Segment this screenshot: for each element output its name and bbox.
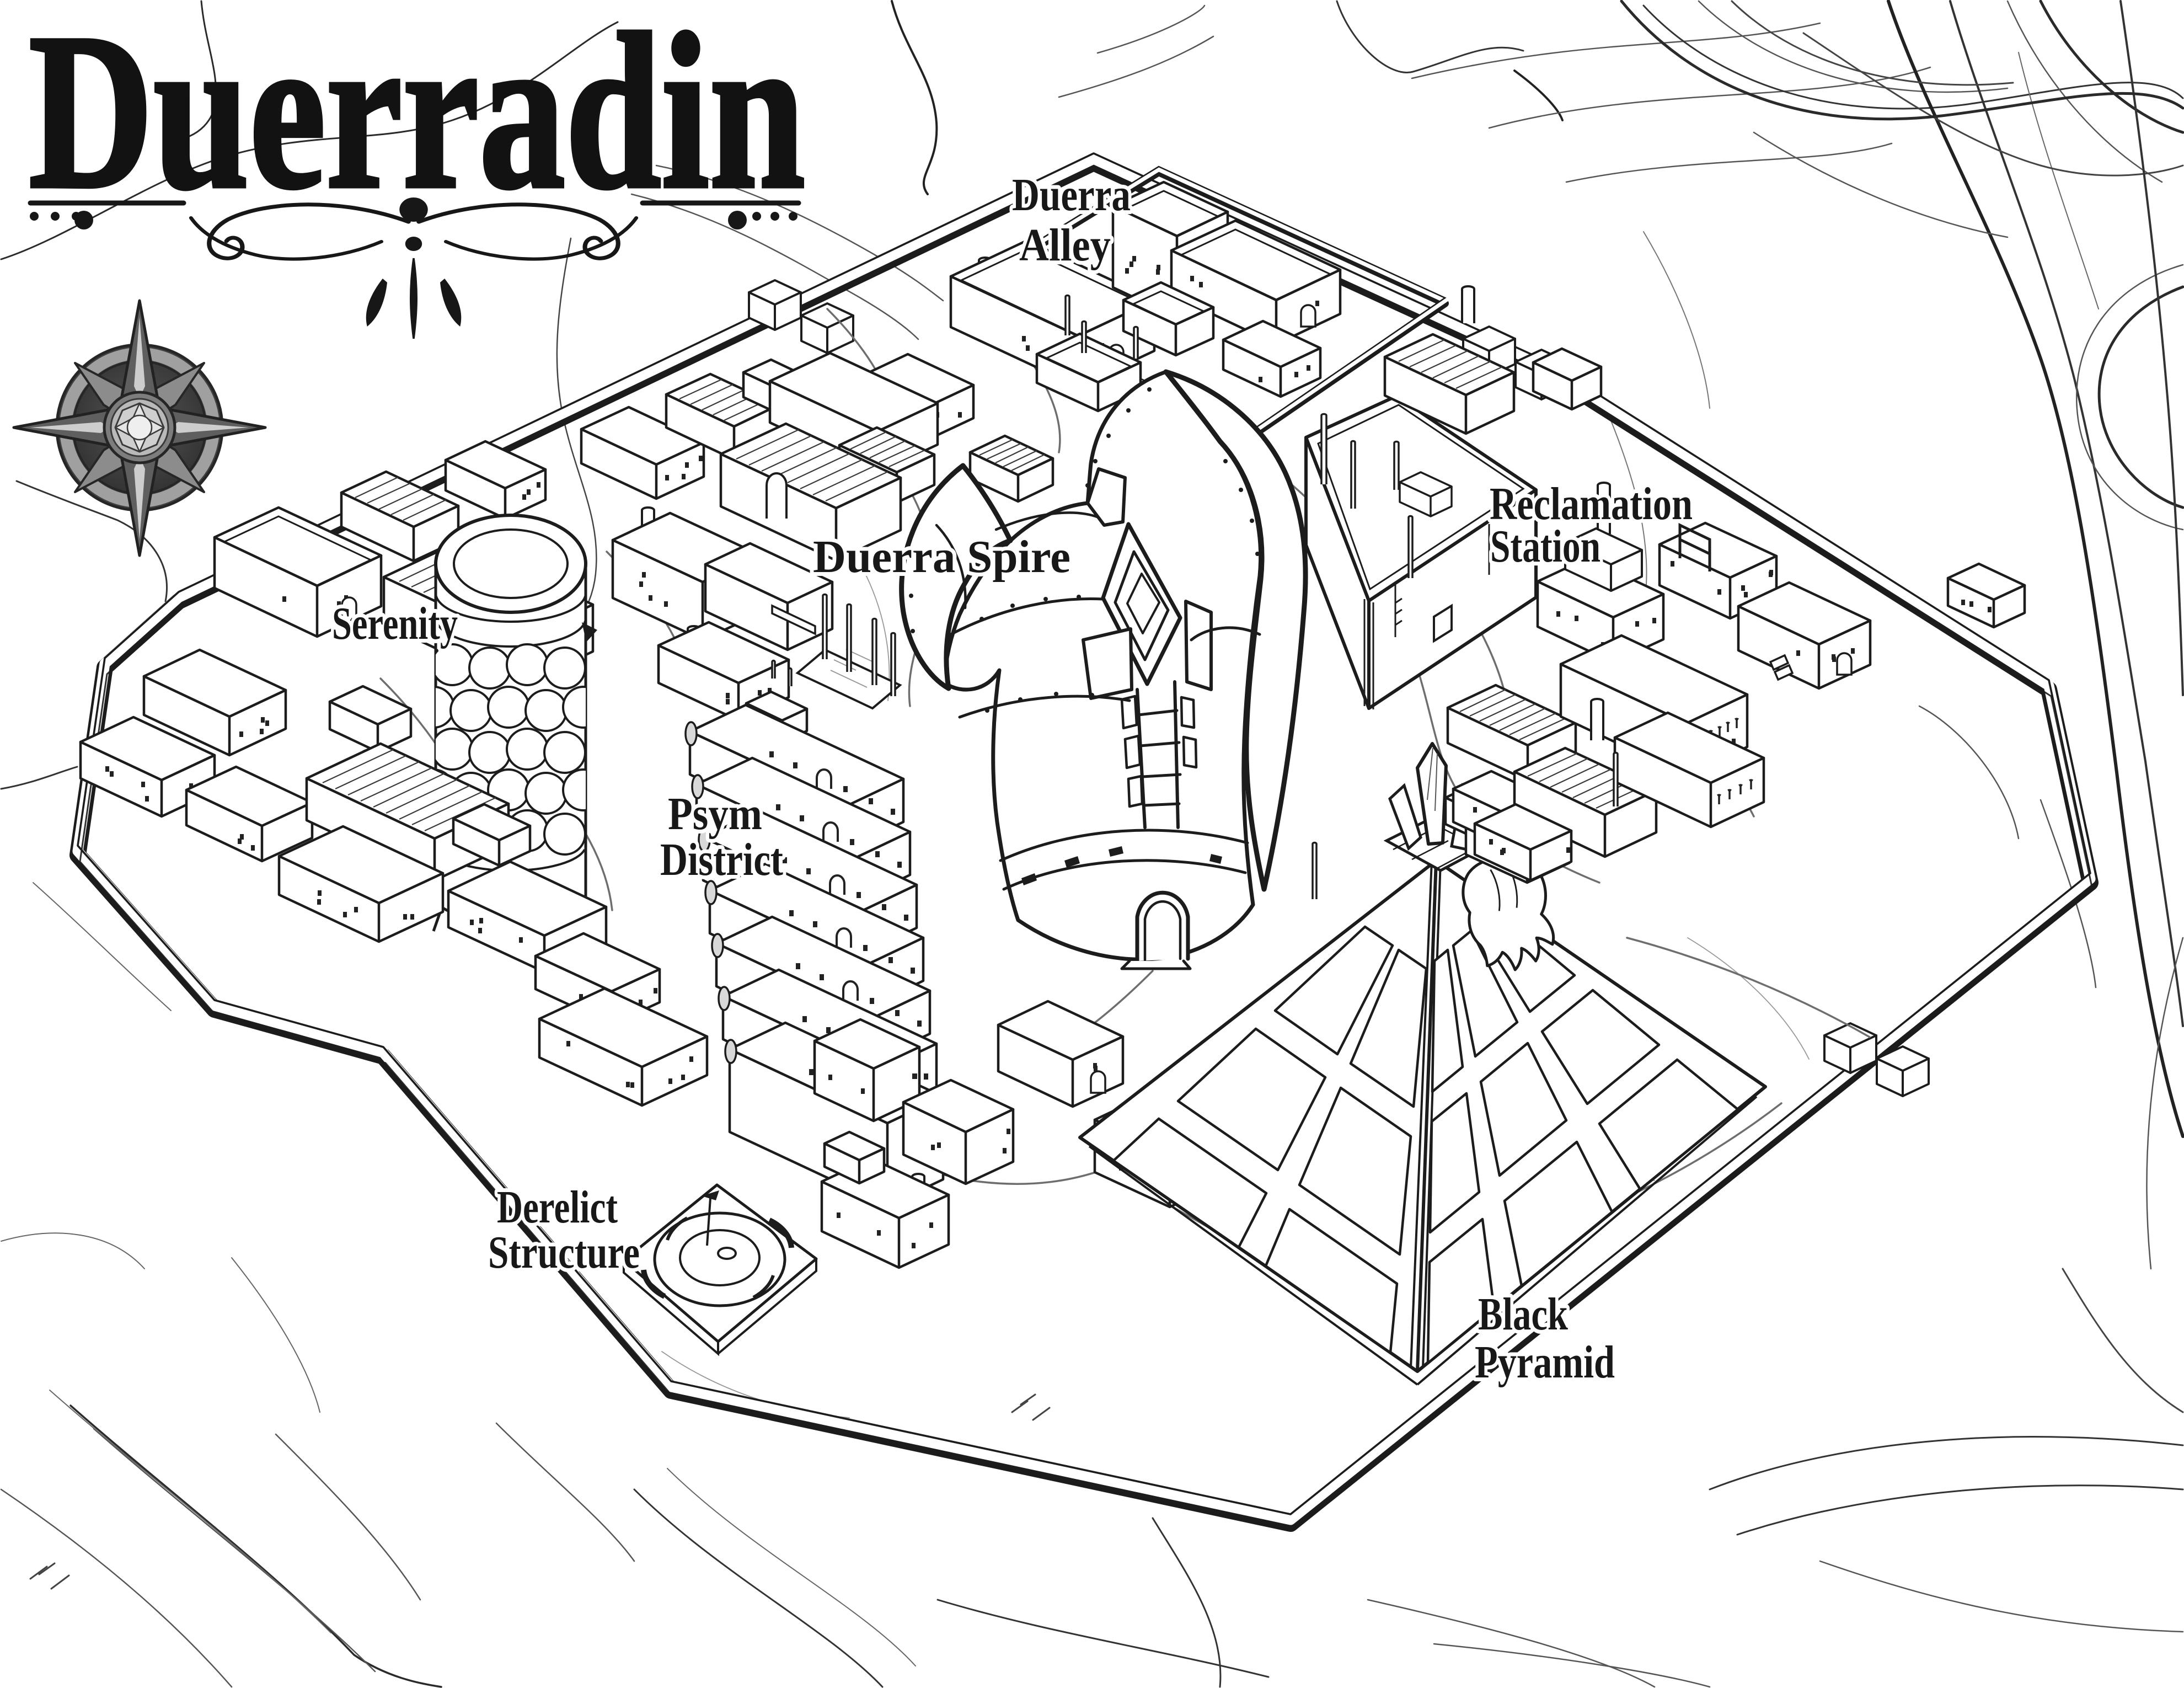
svg-text:Serenity: Serenity xyxy=(332,598,458,649)
svg-text:District: District xyxy=(660,834,783,885)
svg-text:Duerra: Duerra xyxy=(1012,169,1131,221)
svg-text:Pyramid: Pyramid xyxy=(1475,1337,1615,1388)
svg-text:Duerra Spire: Duerra Spire xyxy=(813,531,1070,583)
svg-text:Black: Black xyxy=(1478,1289,1568,1340)
svg-text:Alley: Alley xyxy=(1019,220,1111,271)
svg-text:Derelict: Derelict xyxy=(497,1182,618,1233)
svg-text:Structure: Structure xyxy=(488,1227,640,1278)
svg-text:Station: Station xyxy=(1490,521,1600,572)
svg-text:Psym: Psym xyxy=(668,788,762,840)
